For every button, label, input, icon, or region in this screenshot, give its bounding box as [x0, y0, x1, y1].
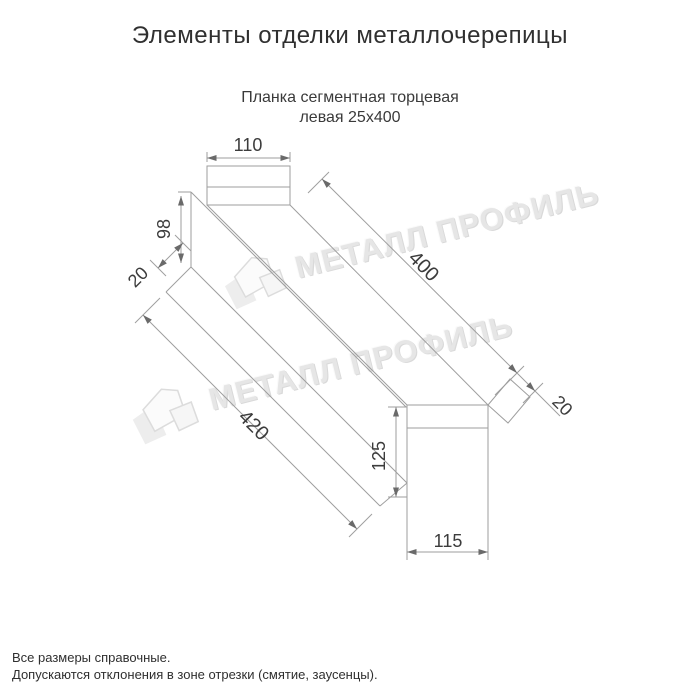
page: МЕТАЛЛ ПРОФИЛЬ МЕТАЛЛ ПРОФИЛЬ — [0, 0, 700, 700]
end-cap-top — [207, 166, 290, 205]
dim-110-label: 110 — [234, 135, 263, 155]
dim-20-right-label: 20 — [548, 391, 576, 419]
dim-125-label: 125 — [369, 441, 389, 471]
dim-20-left-label: 20 — [124, 263, 152, 291]
dim-115-label: 115 — [434, 531, 463, 551]
flange-right — [488, 379, 530, 423]
dim-125: 125 — [369, 407, 407, 497]
dim-110: 110 — [207, 135, 290, 162]
dim-400-label: 400 — [404, 247, 443, 286]
dim-400: 400 — [308, 172, 524, 395]
strip-body — [166, 192, 488, 506]
end-cap-bottom — [407, 405, 488, 552]
dim-98-label: 98 — [154, 219, 174, 239]
technical-drawing: 110 98 20 400 420 — [0, 0, 700, 700]
dim-115: 115 — [407, 531, 488, 560]
dim-98: 98 — [154, 196, 181, 263]
